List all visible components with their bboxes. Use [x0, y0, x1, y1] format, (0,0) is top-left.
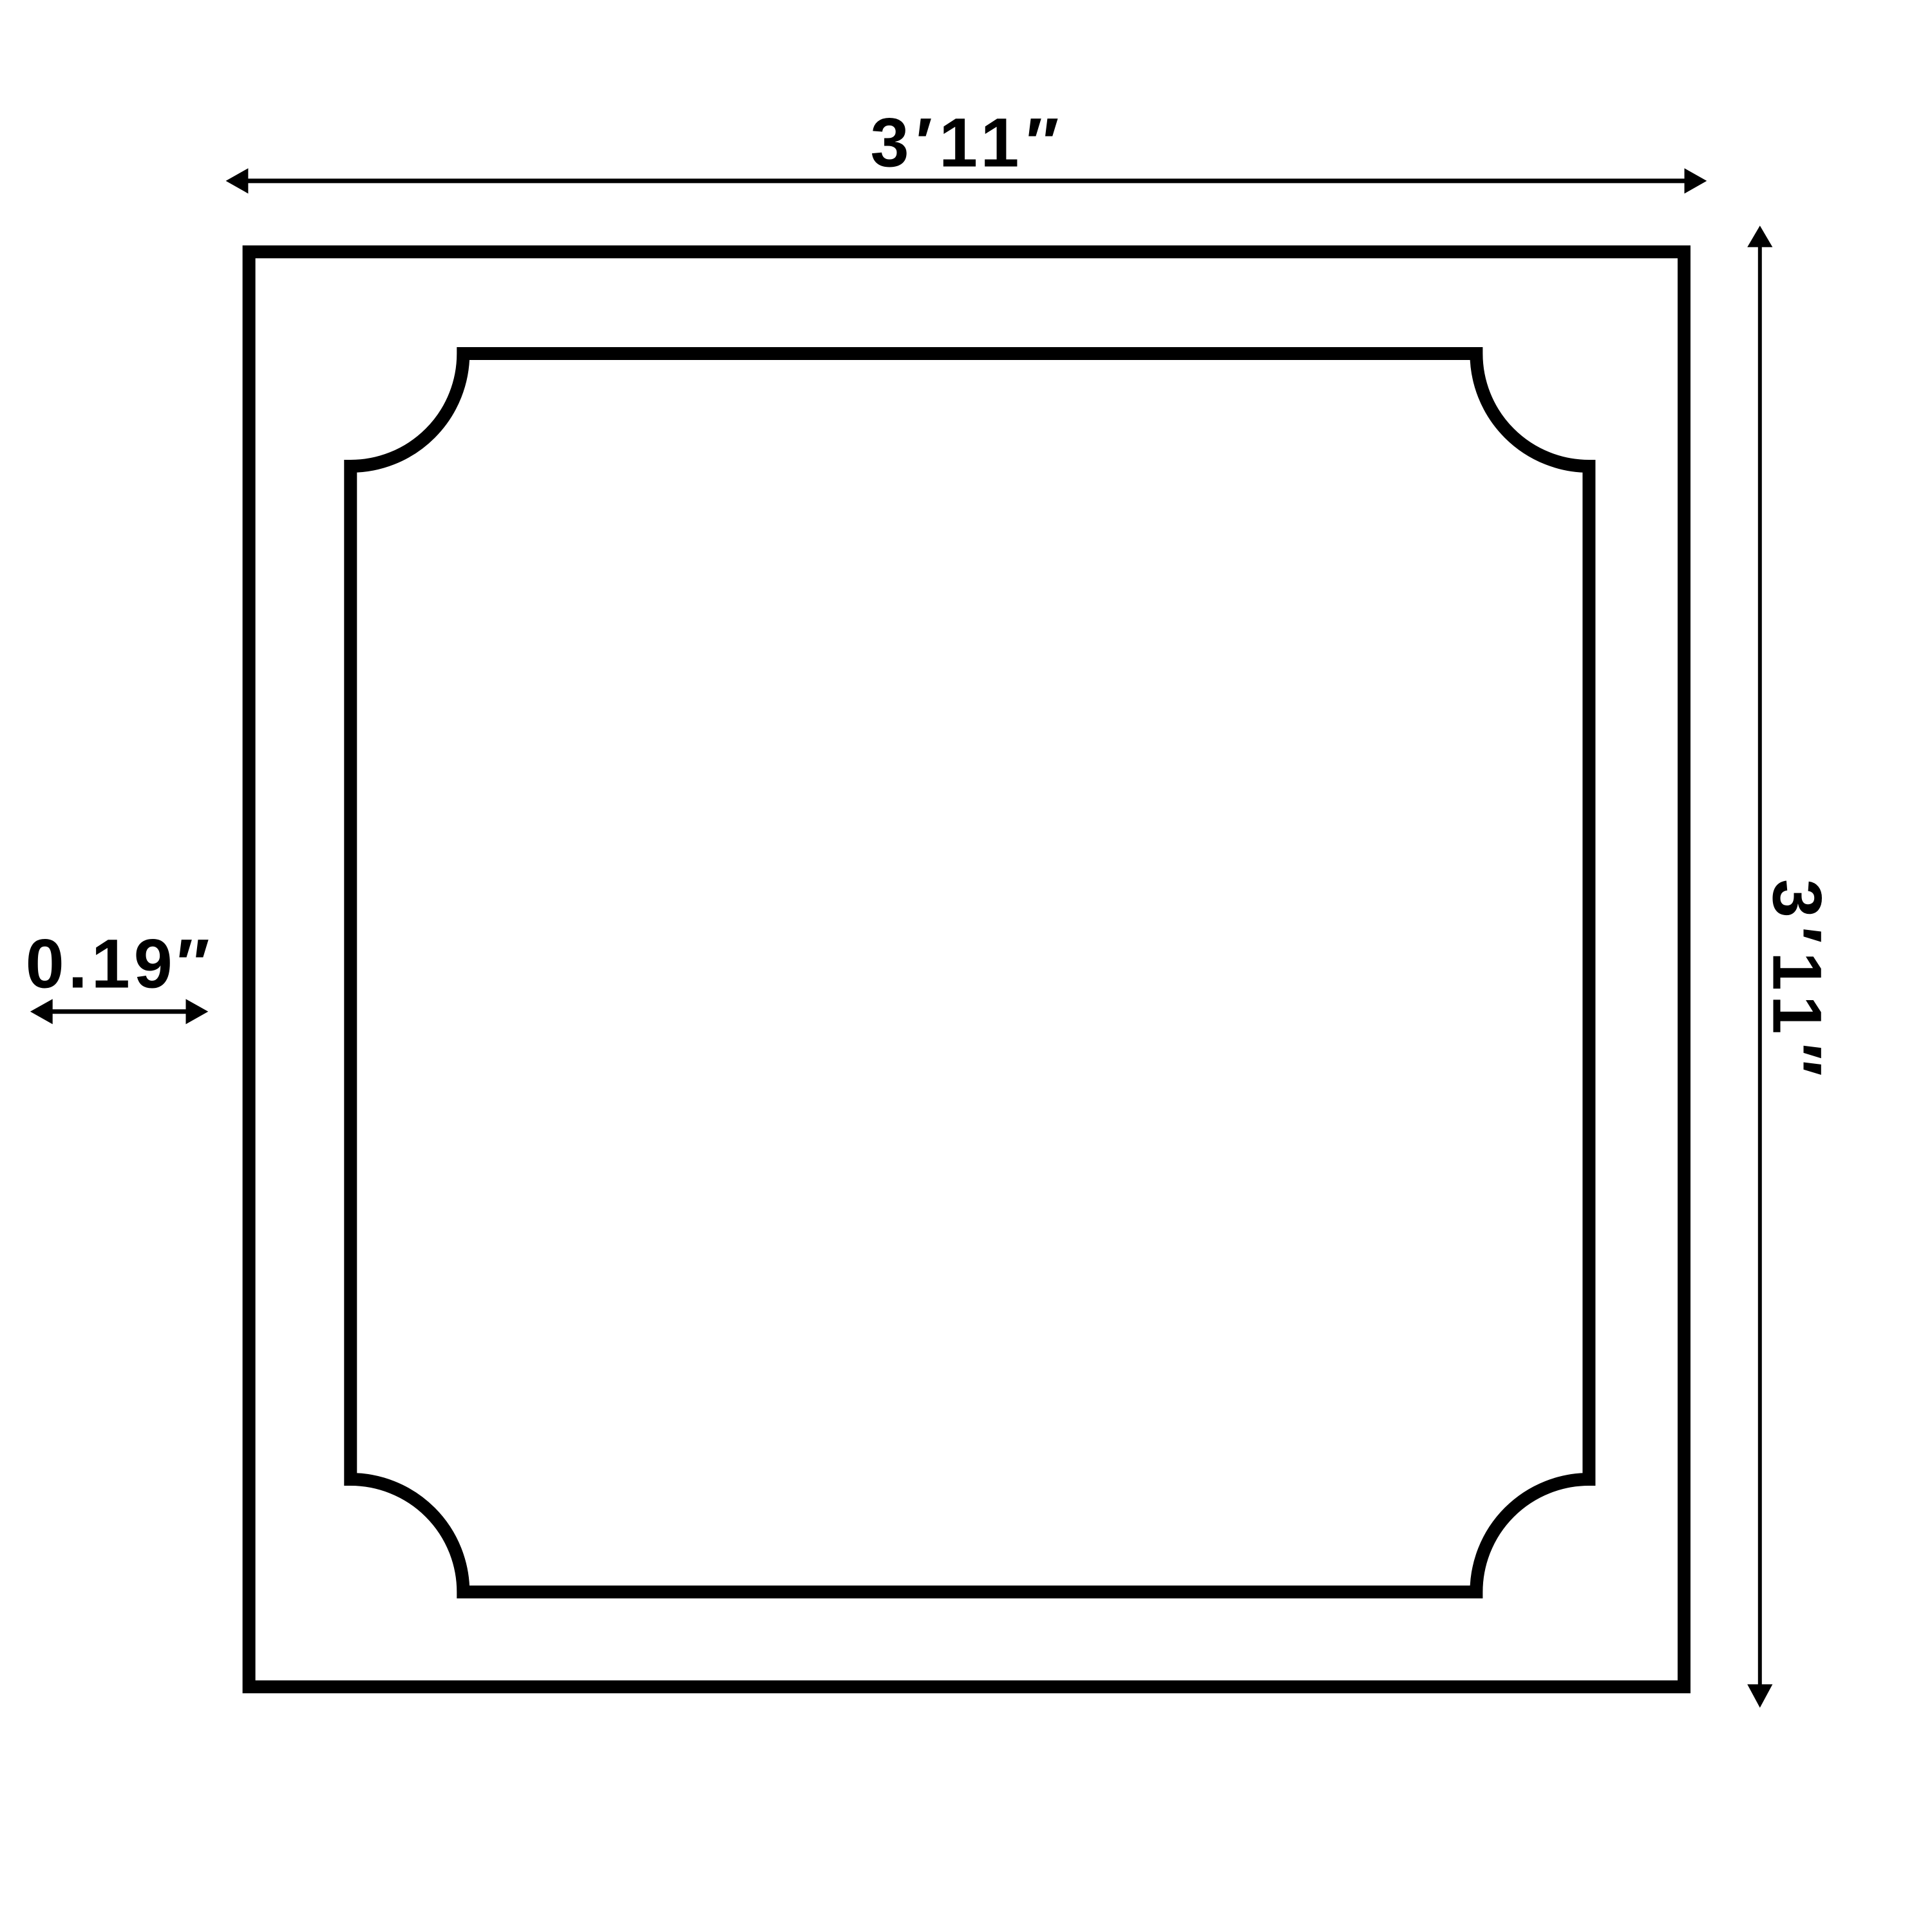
- svg-text:3′11″: 3′11″: [1759, 879, 1837, 1076]
- svg-text:3′11″: 3′11″: [871, 104, 1059, 182]
- svg-text:0.19″: 0.19″: [26, 925, 210, 1003]
